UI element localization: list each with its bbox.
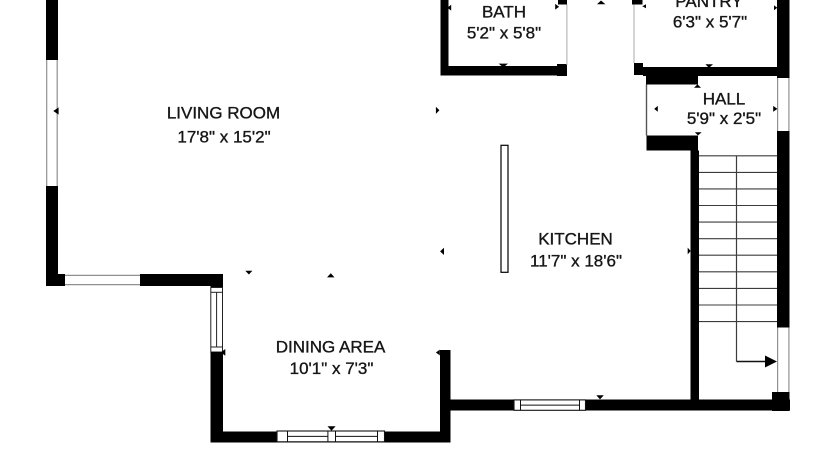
svg-text:17'8" x 15'2": 17'8" x 15'2" (177, 128, 270, 147)
svg-text:KITCHEN: KITCHEN (538, 229, 613, 248)
svg-text:11'7" x 18'6": 11'7" x 18'6" (530, 252, 622, 271)
svg-text:10'1" x 7'3": 10'1" x 7'3" (290, 359, 374, 378)
svg-text:5'2" x 5'8": 5'2" x 5'8" (467, 24, 541, 43)
svg-text:LIVING ROOM: LIVING ROOM (167, 103, 280, 122)
svg-text:HALL: HALL (703, 89, 746, 108)
svg-text:5'9" x 2'5": 5'9" x 2'5" (687, 109, 761, 128)
svg-text:DINING AREA: DINING AREA (276, 338, 386, 357)
svg-text:PANTRY: PANTRY (675, 0, 742, 11)
svg-text:BATH: BATH (482, 2, 526, 21)
svg-text:6'3" x 5'7": 6'3" x 5'7" (673, 12, 747, 31)
